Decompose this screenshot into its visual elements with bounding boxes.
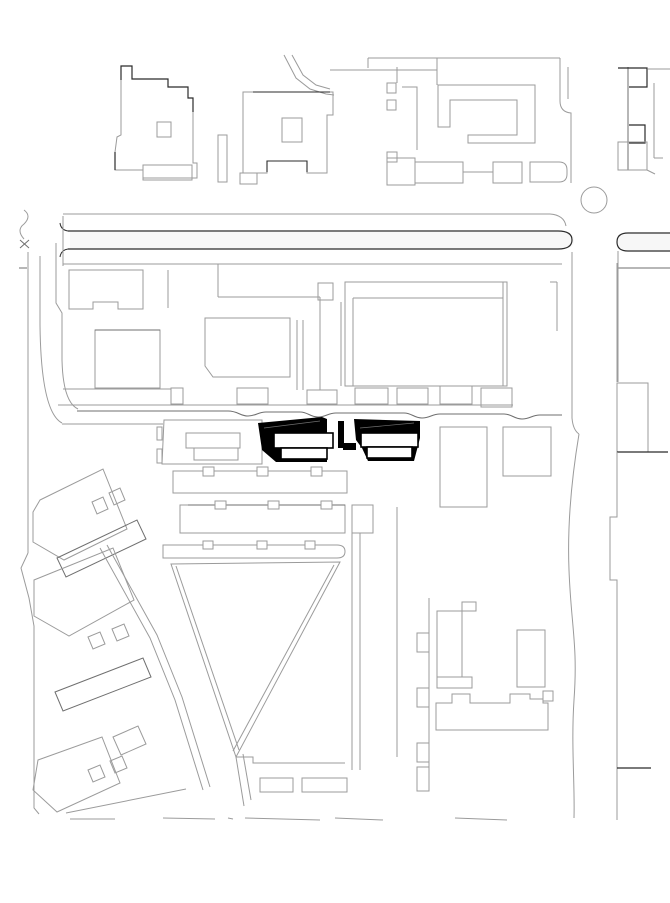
- pavilion-row-2: [237, 388, 268, 404]
- pavilion-row-3: [307, 390, 337, 404]
- building-south-rect: [517, 630, 545, 687]
- cluster-bar-2: [55, 658, 151, 711]
- park-path-east: [233, 565, 334, 751]
- highlight-east-roof-lower: [367, 447, 412, 458]
- building-strip-west: [162, 420, 262, 464]
- road-end-curl-south: [60, 249, 68, 257]
- building-east-1: [440, 427, 487, 507]
- building-g-court: [438, 85, 535, 143]
- building-flag-foot: [437, 677, 472, 688]
- terrace-row-2: [180, 505, 345, 533]
- building-tr-tail: [647, 170, 655, 174]
- building-square-west: [95, 330, 160, 388]
- building-flag: [437, 611, 462, 677]
- park-vertex-tail-2: [243, 754, 251, 800]
- terrace-row-3-notch-2: [257, 541, 267, 549]
- building-a-dark-edge: [121, 66, 193, 112]
- building-south-sq: [543, 691, 553, 701]
- cluster-block-3: [33, 737, 120, 812]
- building-tr-step1: [618, 68, 647, 87]
- roundabout-circle: [581, 187, 607, 213]
- park-triangle: [171, 562, 340, 757]
- strip-inner-upper: [186, 433, 240, 448]
- building-sq-c2: [387, 100, 396, 110]
- sidewalk-dash-3: [228, 818, 233, 819]
- street-diagonal-1: [284, 55, 334, 95]
- site-plan-svg: [0, 0, 670, 903]
- street-east-steps: [610, 452, 617, 820]
- street-curve-south: [569, 434, 579, 818]
- terrace-row-2-notch-2: [268, 501, 279, 509]
- strip-inner-lower: [194, 448, 238, 460]
- park-south-rect-1: [260, 778, 293, 792]
- building-block-nw: [69, 270, 143, 309]
- cluster-sq-2b: [112, 624, 129, 641]
- street-corner-west-inner: [56, 243, 78, 409]
- kiosk-col-2: [417, 688, 429, 707]
- street-diagonal-2: [292, 55, 330, 89]
- park-vertex-tail-1: [236, 757, 244, 806]
- terrace-row-2-notch-1: [215, 501, 226, 509]
- highlight-west-roof-upper: [274, 433, 333, 448]
- terrace-row-2-notch-3: [321, 501, 332, 509]
- cluster-street-2: [66, 789, 186, 813]
- terrace-row-1-notch-2: [257, 467, 268, 476]
- building-far-east: [617, 383, 648, 452]
- building-b-courtyard: [282, 118, 302, 142]
- pavilion-row-4: [355, 388, 388, 404]
- sidewalk-dash-4: [245, 818, 320, 820]
- road-edge-north-outer: [63, 214, 566, 226]
- cluster-sq-3a: [88, 765, 105, 782]
- terrace-row-1-notch-3: [311, 467, 322, 476]
- building-b-dark-notch: [267, 161, 307, 172]
- pavilion-row-5: [397, 388, 428, 404]
- kiosk-col-3: [417, 743, 429, 762]
- terrace-row-1-notch-1: [203, 467, 214, 476]
- sidewalk-dash-6: [455, 818, 507, 820]
- building-tr-step2: [629, 125, 645, 143]
- highlight-connector-foot: [343, 443, 356, 450]
- building-south-long: [436, 694, 548, 730]
- building-flag-tab: [462, 602, 476, 611]
- cluster-bar-1: [57, 520, 146, 577]
- building-narrow: [218, 135, 227, 182]
- terrace-row-3-notch-3: [305, 541, 315, 549]
- tick-rect-2: [157, 449, 162, 463]
- district-boundary-west: [21, 553, 39, 814]
- park-bottom-step: [236, 757, 345, 763]
- tick-rect-1: [157, 427, 162, 440]
- terrace-row-3-notch-1: [203, 541, 213, 549]
- road-surface-east: [618, 234, 670, 250]
- sidewalk-dash-2: [163, 818, 215, 819]
- street-corner-west-outer: [40, 256, 62, 423]
- building-b-annex: [240, 173, 257, 184]
- building-c-row-3: [493, 162, 522, 183]
- terrace-end-block: [352, 505, 373, 533]
- road-surface: [70, 232, 574, 249]
- street-corner-2: [572, 418, 579, 434]
- cluster-block-1: [33, 469, 127, 560]
- pavilion-row-6: [440, 386, 472, 404]
- street-corner-curve: [560, 101, 571, 183]
- curb-mark: [20, 210, 28, 239]
- road-end-curl-north: [60, 223, 68, 231]
- pavilion-row-1: [171, 388, 183, 404]
- building-c-row-2: [415, 162, 463, 183]
- site-plan-figure: [0, 0, 670, 903]
- building-tr-base: [618, 142, 647, 170]
- building-square-mid: [205, 318, 290, 377]
- building-l-line: [402, 87, 417, 150]
- park-south-rect-2: [302, 778, 347, 792]
- cluster-annex: [113, 726, 146, 755]
- cluster-sq-1a: [92, 497, 108, 514]
- cluster-sq-2a: [88, 632, 105, 649]
- building-sq-c1: [387, 83, 396, 93]
- kiosk-col-4: [417, 767, 429, 791]
- building-sq-c3: [387, 152, 397, 162]
- building-east-2: [503, 427, 551, 476]
- sidewalk-dash-5: [335, 818, 383, 820]
- terrace-row-3: [163, 545, 345, 558]
- pavilion-row-7: [481, 388, 512, 407]
- building-c-row-4: [530, 162, 567, 182]
- cluster-block-2: [34, 548, 134, 636]
- highlight-west-roof-lower: [281, 448, 327, 459]
- building-a-courtyard: [157, 122, 171, 137]
- kiosk-col-1: [417, 633, 429, 652]
- park-path-west: [176, 566, 239, 750]
- building-a: [115, 66, 197, 178]
- highlight-east-roof-upper: [361, 433, 418, 447]
